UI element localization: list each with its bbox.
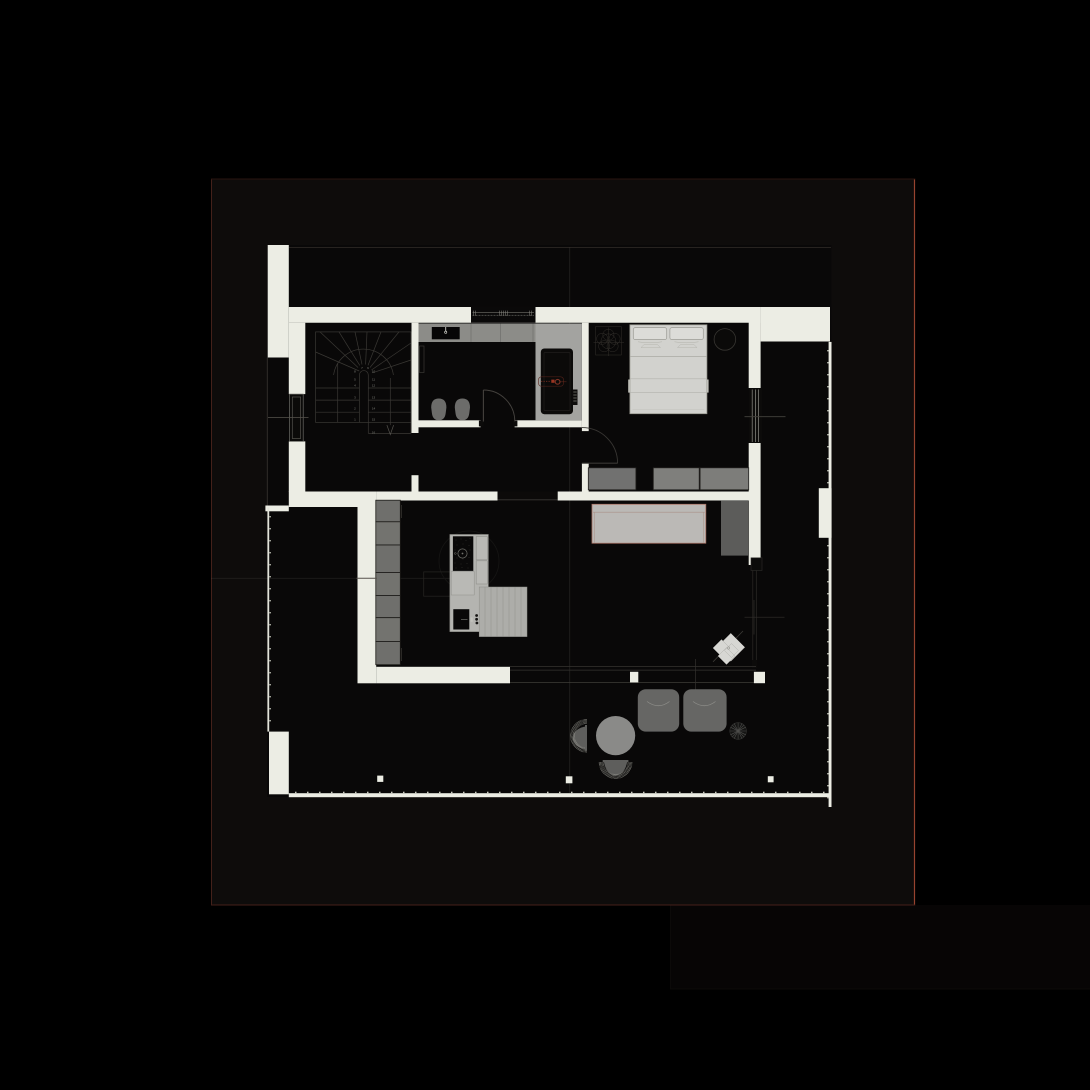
svg-text:12: 12 xyxy=(372,384,376,388)
svg-text:11: 11 xyxy=(372,377,375,381)
svg-text:15: 15 xyxy=(372,418,376,422)
svg-text:13: 13 xyxy=(372,396,376,400)
svg-text:14: 14 xyxy=(372,407,376,411)
svg-text:16: 16 xyxy=(372,431,376,435)
svg-text:10: 10 xyxy=(372,370,376,374)
